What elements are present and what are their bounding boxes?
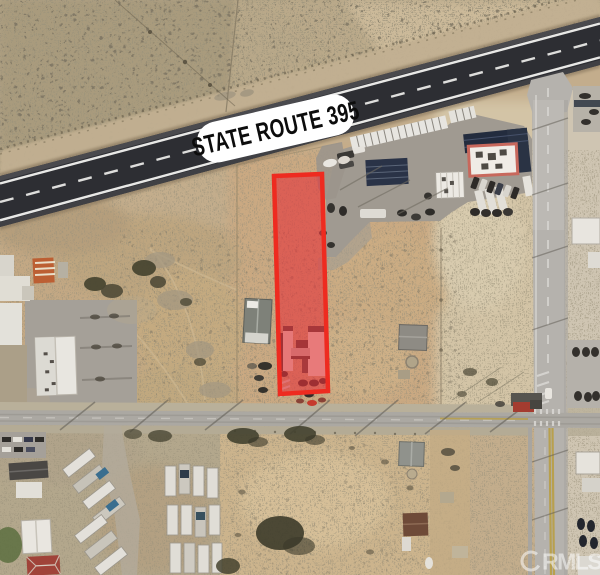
svg-text:RMLS: RMLS — [542, 549, 600, 575]
